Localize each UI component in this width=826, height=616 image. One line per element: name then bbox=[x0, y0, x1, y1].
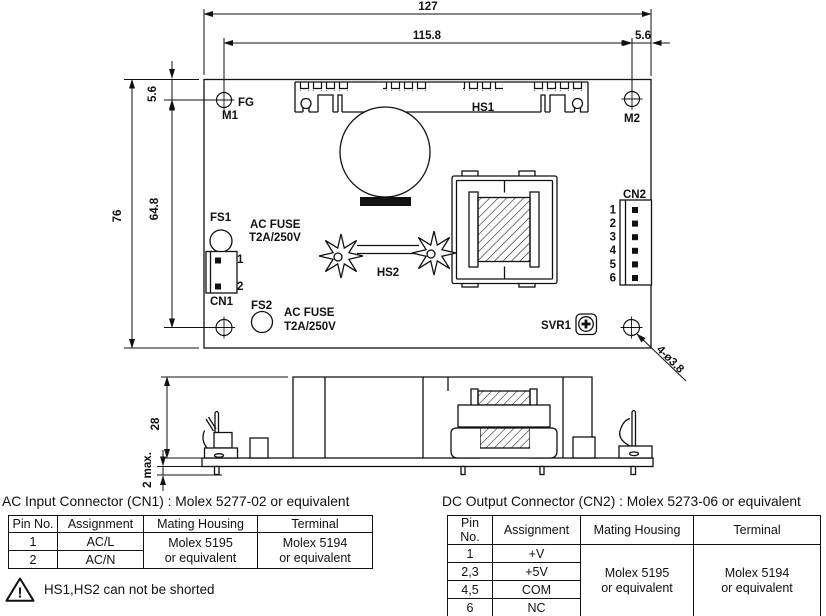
cn1-pin1-pad bbox=[215, 258, 221, 264]
label-hs1: HS1 bbox=[472, 102, 495, 114]
hs1-keyhole-left bbox=[301, 99, 311, 109]
capacitor-base-bar bbox=[360, 197, 411, 206]
warning-note: ! HS1,HS2 can not be shorted bbox=[5, 576, 382, 603]
label-hs2: HS2 bbox=[377, 267, 399, 279]
cn1-row1-assignment: AC/L bbox=[58, 533, 144, 551]
cn2-table-title: DC Output Connector (CN2) : Molex 5273-0… bbox=[442, 494, 826, 509]
label-fuse2-line1: AC FUSE bbox=[284, 307, 335, 319]
cn2-header-mating: Mating Housing bbox=[581, 516, 694, 545]
cn2-pin6-label: 6 bbox=[610, 273, 616, 285]
cn2-header-terminal: Terminal bbox=[694, 516, 821, 545]
cn2-section: DC Output Connector (CN2) : Molex 5273-0… bbox=[447, 494, 826, 616]
cn2-row3-pin: 4,5 bbox=[448, 581, 493, 599]
cn2-pin3-label: 3 bbox=[610, 232, 616, 244]
label-fs1: FS1 bbox=[210, 212, 232, 224]
cn2-row-1: 1 +V Molex 5195 or equivalent Molex 5194… bbox=[448, 545, 821, 563]
cn2-row4-assignment: NC bbox=[493, 599, 581, 616]
label-fg: FG bbox=[238, 97, 254, 109]
label-m1: M1 bbox=[222, 110, 239, 122]
cn1-header-assignment: Assignment bbox=[58, 516, 144, 533]
transformer-winding bbox=[478, 198, 530, 262]
fuse-fs1 bbox=[210, 230, 232, 252]
potentiometer-svr1 bbox=[576, 314, 597, 335]
cn1-pin2-pad bbox=[215, 284, 221, 290]
cn1-pin2-label: 2 bbox=[237, 281, 243, 293]
cn2-header-row: Pin No. Assignment Mating Housing Termin… bbox=[448, 516, 821, 545]
mechanical-drawing: 127 115.8 5.6 76 64.8 5.6 28 2 max. 4-ø3… bbox=[0, 0, 826, 492]
cn1-header-pin: Pin No. bbox=[9, 516, 58, 533]
label-fuse1-line1: AC FUSE bbox=[250, 219, 301, 231]
cn2-mating-housing: Molex 5195 or equivalent bbox=[581, 545, 694, 616]
dim-total-width-label: 127 bbox=[418, 1, 437, 13]
label-cn2: CN2 bbox=[623, 189, 646, 201]
label-fs2: FS2 bbox=[251, 300, 272, 312]
dim-pin-max-label: 2 max. bbox=[142, 452, 154, 488]
warning-exclamation: ! bbox=[18, 585, 23, 602]
cn1-terminal: Molex 5194 or equivalent bbox=[258, 533, 373, 569]
cn2-header-assignment: Assignment bbox=[493, 516, 581, 545]
dim-right-offset-label: 5.6 bbox=[635, 30, 651, 42]
cn1-header-mating: Mating Housing bbox=[144, 516, 258, 533]
cn1-header-terminal: Terminal bbox=[258, 516, 373, 533]
cn2-header-pin: Pin No. bbox=[448, 516, 493, 545]
cn2-pin4-label: 4 bbox=[610, 245, 617, 257]
hs1-keyhole-right bbox=[573, 99, 583, 109]
cn1-header-row: Pin No. Assignment Mating Housing Termin… bbox=[9, 516, 373, 533]
datasheet-page: 127 115.8 5.6 76 64.8 5.6 28 2 max. 4-ø3… bbox=[0, 0, 826, 616]
label-cn1: CN1 bbox=[210, 296, 234, 308]
dim-top-offset-label: 5.6 bbox=[147, 86, 159, 102]
label-svr1: SVR1 bbox=[541, 320, 572, 332]
cn1-table: Pin No. Assignment Mating Housing Termin… bbox=[8, 515, 373, 569]
cn2-row3-assignment: COM bbox=[493, 581, 581, 599]
cn1-row1-pin: 1 bbox=[9, 533, 58, 551]
cn1-mating-housing: Molex 5195 or equivalent bbox=[144, 533, 258, 569]
cn2-row2-pin: 2,3 bbox=[448, 563, 493, 581]
cn2-row4-pin: 6 bbox=[448, 599, 493, 616]
cn1-row2-assignment: AC/N bbox=[58, 551, 144, 569]
cn2-table: Pin No. Assignment Mating Housing Termin… bbox=[447, 515, 821, 616]
cn2-terminal: Molex 5194 or equivalent bbox=[694, 545, 821, 616]
fuse-fs2 bbox=[252, 312, 273, 333]
label-fuse1-line2: T2A/250V bbox=[249, 232, 301, 244]
cn1-pin1-label: 1 bbox=[237, 254, 244, 266]
warning-text: HS1,HS2 can not be shorted bbox=[44, 582, 214, 597]
cn2-pin1-label: 1 bbox=[610, 205, 617, 217]
cn1-section: AC Input Connector (CN1) : Molex 5277-02… bbox=[2, 494, 382, 603]
label-m2: M2 bbox=[624, 113, 640, 125]
cn2-pin2-label: 2 bbox=[610, 218, 616, 230]
dim-total-height-label: 76 bbox=[112, 210, 124, 223]
transformer bbox=[452, 171, 557, 287]
cn1-row-1: 1 AC/L Molex 5195 or equivalent Molex 51… bbox=[9, 533, 373, 551]
connector-cn2 bbox=[620, 200, 652, 285]
cn2-row1-pin: 1 bbox=[448, 545, 493, 563]
pcb-side-view bbox=[202, 377, 653, 475]
cn2-row2-assignment: +5V bbox=[493, 563, 581, 581]
dim-side-height-label: 28 bbox=[150, 417, 162, 430]
warning-triangle-icon: ! bbox=[5, 576, 35, 603]
cn2-pin5-label: 5 bbox=[610, 259, 617, 271]
dim-hole-span-h-label: 115.8 bbox=[413, 30, 442, 42]
cn2-row1-assignment: +V bbox=[493, 545, 581, 563]
side-pcb-board bbox=[202, 458, 653, 467]
dim-mounting-holes-label: 4-ø3.8 bbox=[654, 344, 686, 376]
cn1-row2-pin: 2 bbox=[9, 551, 58, 569]
dim-hole-span-v-label: 64.8 bbox=[149, 197, 161, 220]
connector-cn1 bbox=[206, 252, 237, 294]
cn1-table-title: AC Input Connector (CN1) : Molex 5277-02… bbox=[2, 494, 382, 509]
label-fuse2-line2: T2A/250V bbox=[284, 321, 336, 333]
